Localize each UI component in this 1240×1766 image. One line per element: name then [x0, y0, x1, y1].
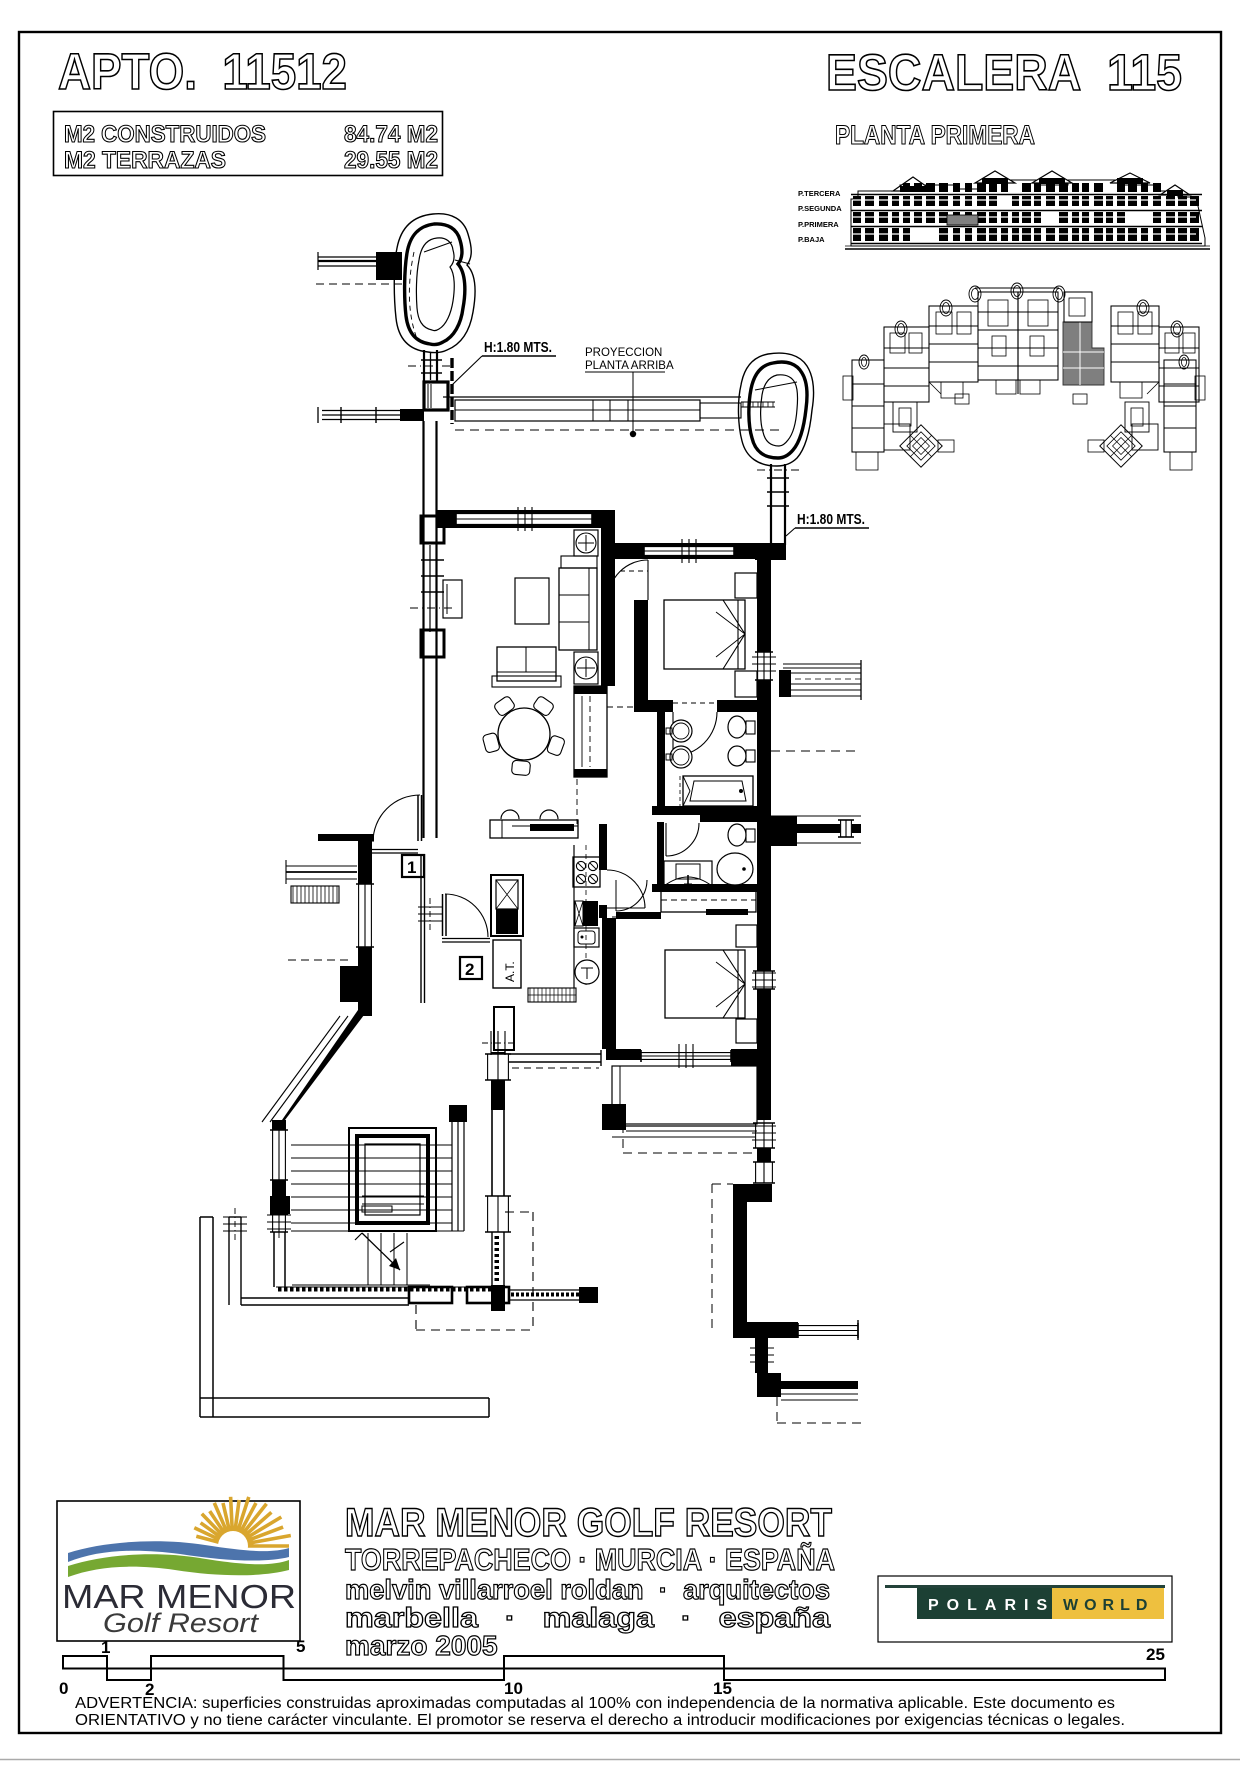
svg-text:ESCALERA 115: ESCALERA 115 — [826, 44, 1182, 101]
svg-text:Golf Resort: Golf Resort — [103, 1608, 260, 1638]
svg-text:MAR MENOR GOLF RESORT: MAR MENOR GOLF RESORT — [345, 1501, 832, 1545]
svg-text:P.SEGUNDA: P.SEGUNDA — [798, 204, 842, 213]
svg-text:P.TERCERA: P.TERCERA — [798, 189, 841, 198]
svg-text:H:1.80 MTS.: H:1.80 MTS. — [484, 339, 552, 356]
svg-text:TORREPACHECO · MURCIA · ESPAÑA: TORREPACHECO · MURCIA · ESPAÑA — [345, 1542, 835, 1577]
svg-text:P.BAJA: P.BAJA — [798, 235, 825, 244]
svg-text:0: 0 — [59, 1679, 68, 1698]
svg-text:WORLD: WORLD — [1063, 1597, 1153, 1614]
svg-text:1: 1 — [407, 858, 416, 877]
svg-text:marzo 2005: marzo 2005 — [345, 1630, 498, 1661]
svg-text:29.55 M2: 29.55 M2 — [344, 147, 438, 174]
svg-text:melvin villarroel roldan · a: melvin villarroel roldan · arquitectos — [345, 1574, 830, 1605]
svg-text:M2 TERRAZAS: M2 TERRAZAS — [64, 147, 226, 174]
svg-text:ADVERTENCIA: superficies const: ADVERTENCIA: superficies construidas apr… — [75, 1695, 1115, 1712]
svg-text:marbella · malaga · es: marbella · malaga · españa — [345, 1602, 830, 1633]
svg-text:PLANTA ARRIBA: PLANTA ARRIBA — [585, 360, 674, 372]
svg-text:25: 25 — [1146, 1645, 1165, 1664]
svg-text:A.T.: A.T. — [503, 961, 517, 982]
svg-text:APTO. 11512: APTO. 11512 — [58, 43, 347, 100]
svg-text:PLANTA PRIMERA: PLANTA PRIMERA — [835, 120, 1035, 150]
svg-text:2: 2 — [465, 960, 474, 979]
svg-text:M2 CONSTRUIDOS: M2 CONSTRUIDOS — [64, 121, 266, 148]
svg-text:ORIENTATIVO y no tiene carácte: ORIENTATIVO y no tiene carácter vinculan… — [75, 1712, 1125, 1729]
svg-text:1: 1 — [101, 1638, 110, 1657]
svg-text:POLARIS: POLARIS — [928, 1597, 1055, 1614]
svg-text:84.74 M2: 84.74 M2 — [344, 121, 438, 148]
svg-text:5: 5 — [296, 1637, 305, 1656]
svg-text:P.PRIMERA: P.PRIMERA — [798, 220, 839, 229]
svg-text:H:1.80 MTS.: H:1.80 MTS. — [797, 511, 865, 528]
svg-text:PROYECCION: PROYECCION — [585, 347, 662, 359]
